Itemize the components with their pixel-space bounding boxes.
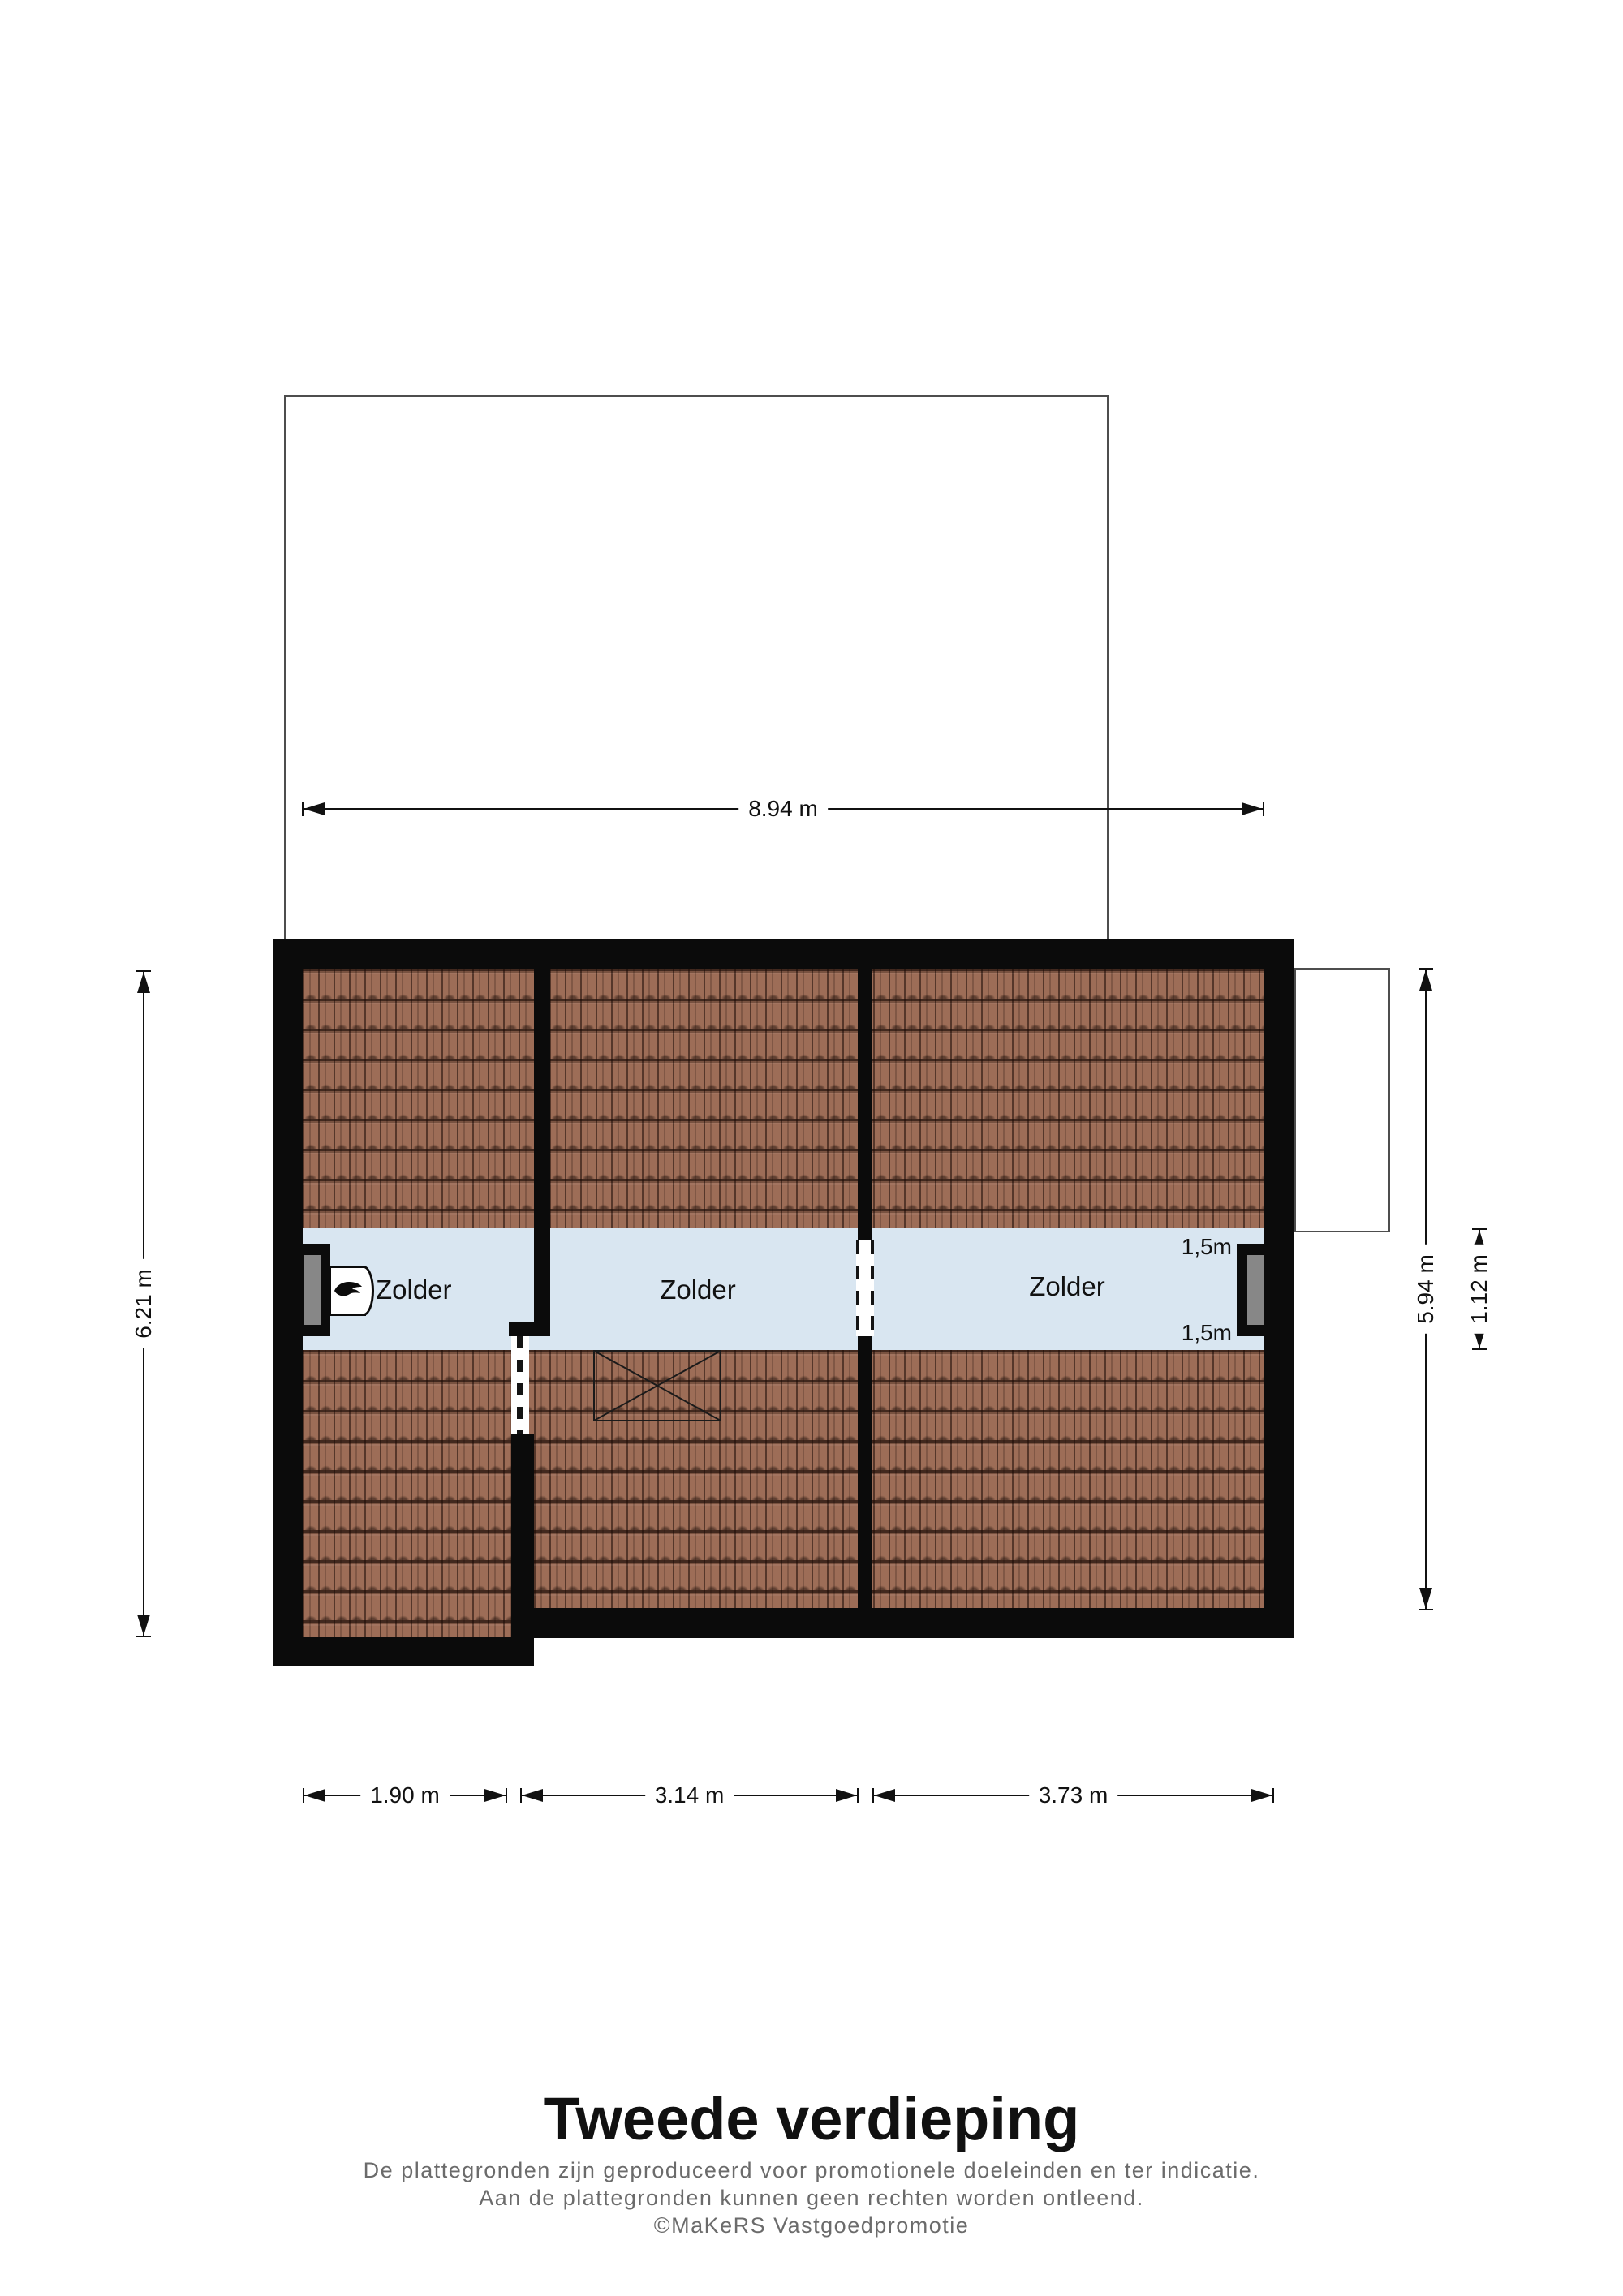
wall-divider-left-foot xyxy=(509,1322,550,1336)
dimension-bottom-left: 1.90 m xyxy=(303,1784,507,1807)
boiler-flame-icon xyxy=(334,1279,363,1303)
dimension-overall-width-label: 8.94 m xyxy=(738,796,828,822)
wall-right xyxy=(1264,939,1294,1638)
disclaimer-line-1: De plattegronden zijn geproduceerd voor … xyxy=(0,2156,1623,2184)
dimension-overall-width: 8.94 m xyxy=(302,798,1264,820)
window-right-glass xyxy=(1247,1255,1264,1325)
door-opening-left xyxy=(511,1336,529,1434)
door-opening-right xyxy=(856,1240,874,1336)
dimension-bottom-right: 3.73 m xyxy=(872,1784,1274,1807)
dimension-bottom-middle: 3.14 m xyxy=(520,1784,859,1807)
footprint-outline xyxy=(284,395,1109,939)
dimension-left-height-label: 6.21 m xyxy=(131,1259,157,1348)
footprint-outline-right-extension xyxy=(1294,968,1390,1232)
wall-divider-right-nub-bottom xyxy=(858,1336,872,1350)
dimension-bottom-middle-label: 3.14 m xyxy=(645,1782,734,1808)
page-title: Tweede verdieping xyxy=(0,2087,1623,2152)
wall-bottom-left-tab xyxy=(273,1637,534,1666)
dimension-left-height: 6.21 m xyxy=(132,970,155,1637)
boiler-unit xyxy=(329,1266,366,1316)
wall-divider-right-lower xyxy=(858,1350,872,1608)
wall-top xyxy=(273,939,1294,969)
room-label-zolder-middle: Zolder xyxy=(617,1274,779,1306)
dimension-right-height-label: 5.94 m xyxy=(1413,1245,1439,1334)
room-label-zolder-left: Zolder xyxy=(376,1274,452,1306)
roof-area-top xyxy=(303,969,1264,1228)
wall-left xyxy=(273,939,303,1666)
dimension-right-height: 5.94 m xyxy=(1414,968,1437,1610)
headroom-label-bottom: 1,5m xyxy=(1136,1320,1232,1346)
room-label-zolder-right: Zolder xyxy=(986,1271,1148,1303)
dimension-floor-strip-height: 1.12 m xyxy=(1468,1228,1491,1350)
dimension-bottom-left-label: 1.90 m xyxy=(360,1782,450,1808)
floorplan-canvas: Zolder Zolder Zolder 1,5m 1,5m 8.94 m 1.… xyxy=(0,0,1623,2296)
dimension-floor-strip-height-label: 1.12 m xyxy=(1466,1245,1492,1334)
wall-bottom-main xyxy=(534,1608,1294,1638)
headroom-label-top: 1,5m xyxy=(1136,1234,1232,1260)
wall-divider-right-upper xyxy=(858,969,872,1228)
wall-divider-right-nub-top xyxy=(858,1228,872,1240)
disclaimer-line-2: Aan de plattegronden kunnen geen rechten… xyxy=(0,2184,1623,2212)
roof-area-bottom-left xyxy=(303,1350,534,1637)
disclaimer-line-3: ©MaKeRS Vastgoedpromotie xyxy=(0,2212,1623,2239)
window-left-glass xyxy=(304,1255,321,1325)
stairwell-cross-icon xyxy=(593,1350,721,1421)
dimension-bottom-right-label: 3.73 m xyxy=(1029,1782,1118,1808)
wall-divider-left-upper xyxy=(534,969,550,1322)
wall-divider-left-lower xyxy=(511,1434,534,1637)
